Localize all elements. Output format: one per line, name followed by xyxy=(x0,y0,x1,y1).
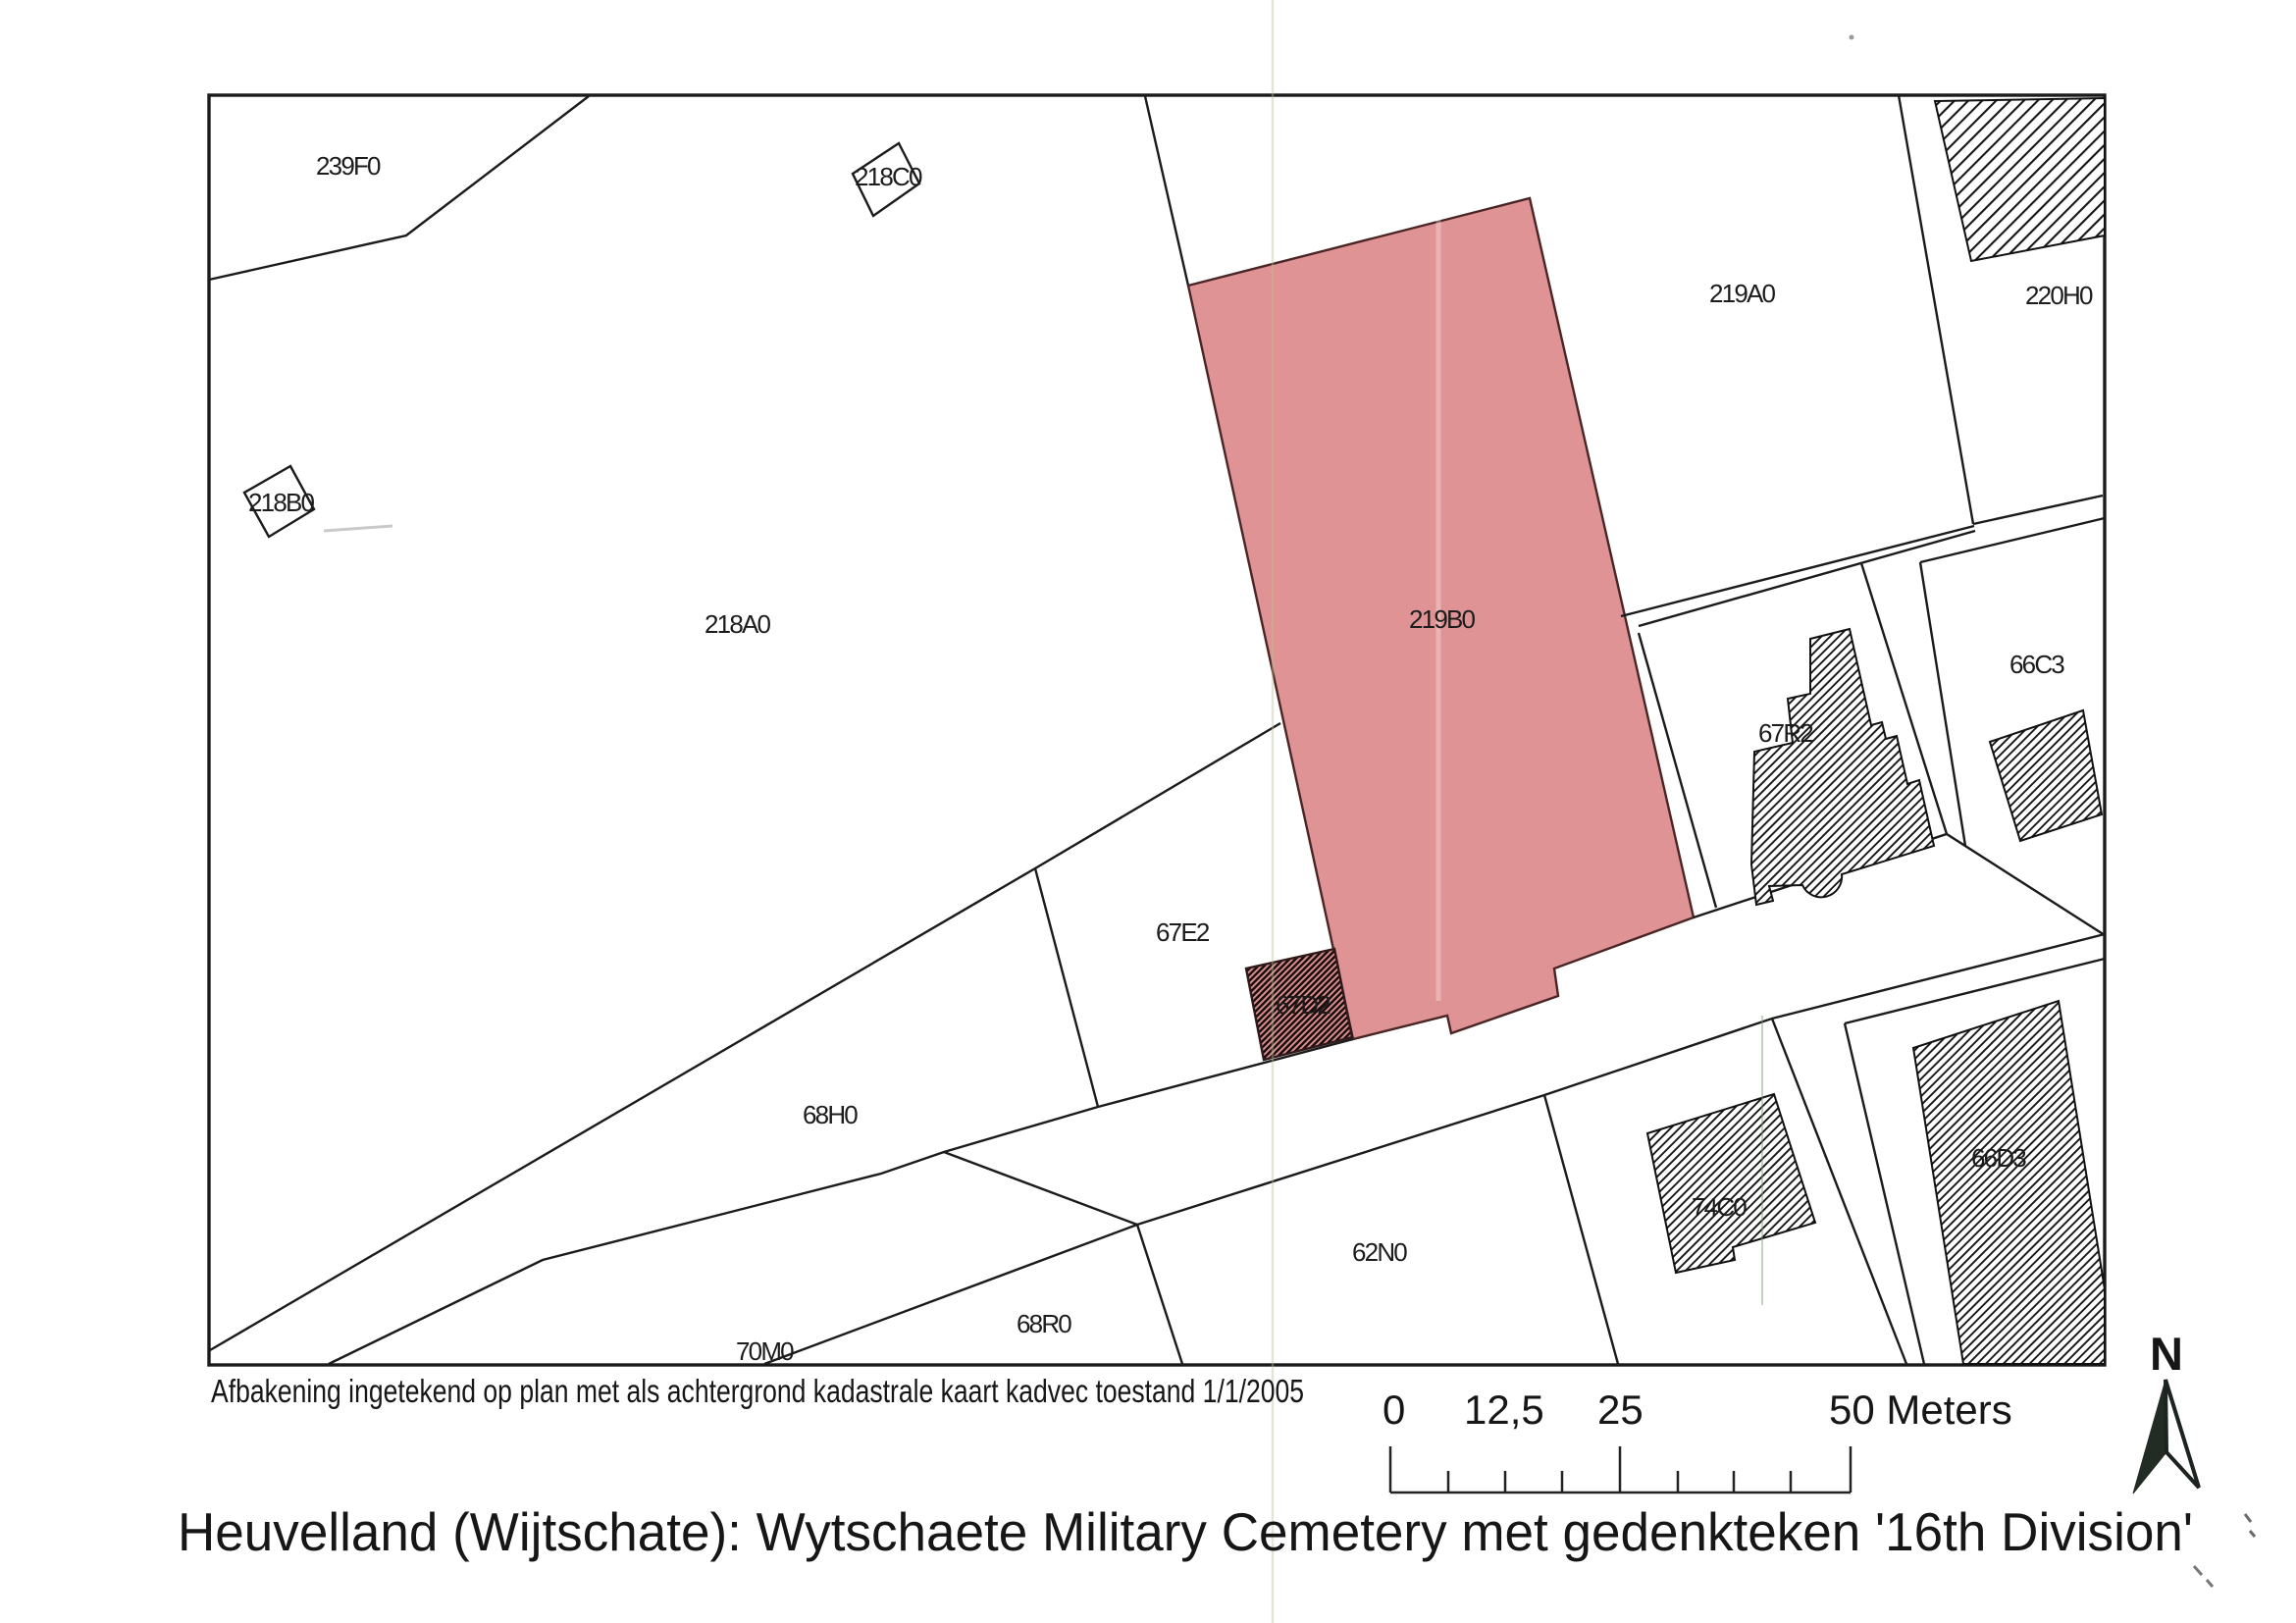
svg-text:N: N xyxy=(2150,1328,2183,1380)
svg-text:50 Meters: 50 Meters xyxy=(1829,1387,2012,1433)
svg-text:Heuvelland (Wijtschate): Wytsc: Heuvelland (Wijtschate): Wytschaete Mili… xyxy=(178,1501,2193,1562)
svg-text:67R2: 67R2 xyxy=(1758,718,1813,748)
svg-text:218A0: 218A0 xyxy=(704,609,771,639)
svg-text:68H0: 68H0 xyxy=(803,1100,858,1129)
svg-text:68R0: 68R0 xyxy=(1017,1309,1071,1338)
svg-text:67D2: 67D2 xyxy=(1276,990,1331,1020)
svg-text:219B0: 219B0 xyxy=(1409,604,1476,634)
svg-text:Afbakening ingetekend op plan: Afbakening ingetekend op plan met als ac… xyxy=(211,1373,1304,1409)
svg-text:66D3: 66D3 xyxy=(1971,1143,2026,1173)
svg-text:67E2: 67E2 xyxy=(1156,917,1210,947)
svg-text:74C0: 74C0 xyxy=(1692,1192,1747,1222)
svg-text:25: 25 xyxy=(1597,1387,1644,1433)
svg-text:0: 0 xyxy=(1383,1387,1405,1433)
svg-text:66C3: 66C3 xyxy=(2009,650,2064,679)
svg-text:70M0: 70M0 xyxy=(736,1336,794,1366)
svg-text:239F0: 239F0 xyxy=(316,151,381,181)
svg-text:62N0: 62N0 xyxy=(1352,1237,1407,1267)
svg-text:218C0: 218C0 xyxy=(855,162,922,191)
svg-text:219A0: 219A0 xyxy=(1709,279,1776,308)
svg-text:220H0: 220H0 xyxy=(2025,281,2093,310)
svg-text:12,5: 12,5 xyxy=(1464,1387,1544,1433)
svg-text:218B0: 218B0 xyxy=(248,488,315,517)
